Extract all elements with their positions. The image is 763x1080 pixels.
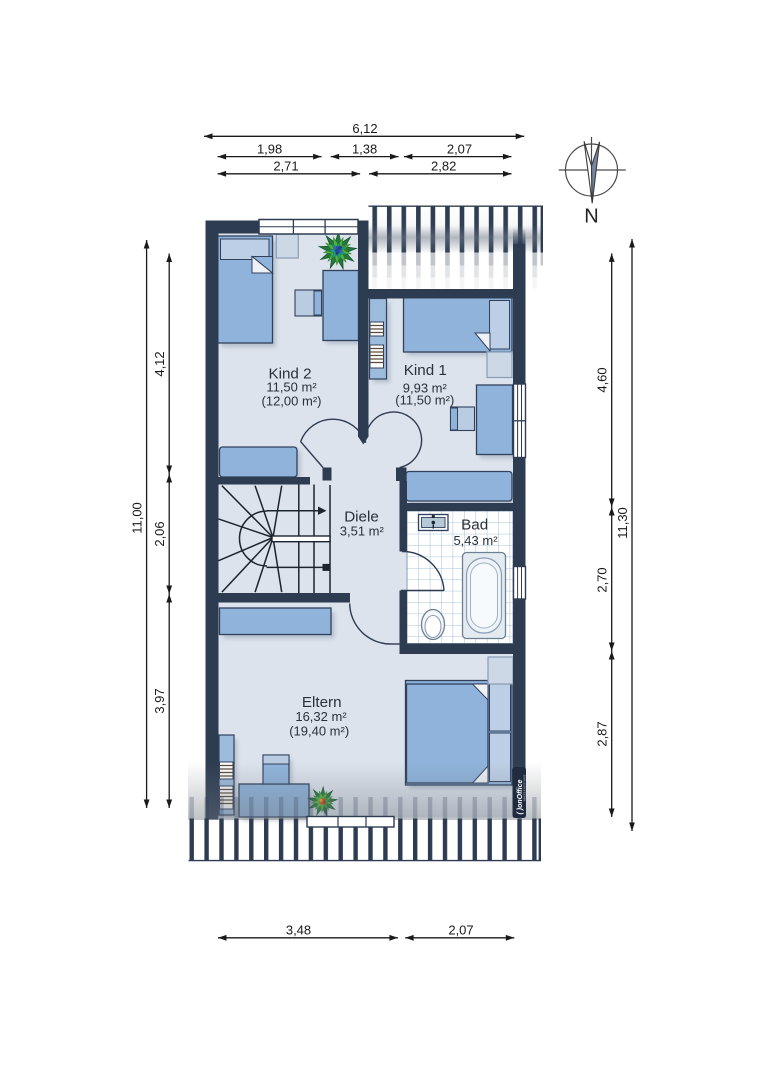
svg-text:( )onOffice: ( )onOffice [517, 780, 524, 815]
svg-text:2,82: 2,82 [431, 159, 456, 174]
svg-text:2,71: 2,71 [273, 159, 298, 174]
svg-text:2,87: 2,87 [595, 721, 610, 746]
svg-text:3,51 m²: 3,51 m² [340, 524, 385, 539]
svg-text:2,70: 2,70 [595, 567, 610, 592]
svg-text:1,98: 1,98 [257, 141, 282, 156]
svg-text:IMMOBILIENSOFTWARE: IMMOBILIENSOFTWARE [524, 774, 527, 801]
svg-text:2,07: 2,07 [447, 141, 472, 156]
svg-text:4,60: 4,60 [595, 367, 610, 392]
svg-text:Bad: Bad [461, 516, 488, 533]
svg-text:11,00: 11,00 [130, 502, 145, 534]
svg-text:2,06: 2,06 [152, 521, 167, 546]
svg-text:4,12: 4,12 [152, 351, 167, 376]
svg-text:16,32 m²: 16,32 m² [295, 709, 347, 724]
svg-text:11,50 m²: 11,50 m² [266, 379, 317, 394]
svg-text:3,97: 3,97 [152, 688, 167, 713]
svg-text:(12,00 m²): (12,00 m²) [262, 393, 322, 408]
svg-text:2,07: 2,07 [448, 922, 473, 937]
svg-text:Kind 1: Kind 1 [404, 362, 447, 379]
svg-text:11,30: 11,30 [615, 507, 630, 539]
svg-text:6,12: 6,12 [352, 121, 377, 136]
svg-text:1,38: 1,38 [352, 141, 377, 156]
svg-text:(11,50 m²): (11,50 m²) [395, 393, 454, 408]
svg-text:5,43 m²: 5,43 m² [453, 533, 498, 548]
svg-text:N: N [584, 206, 598, 228]
svg-text:3,48: 3,48 [286, 922, 311, 937]
svg-text:(19,40 m²): (19,40 m²) [289, 724, 349, 739]
